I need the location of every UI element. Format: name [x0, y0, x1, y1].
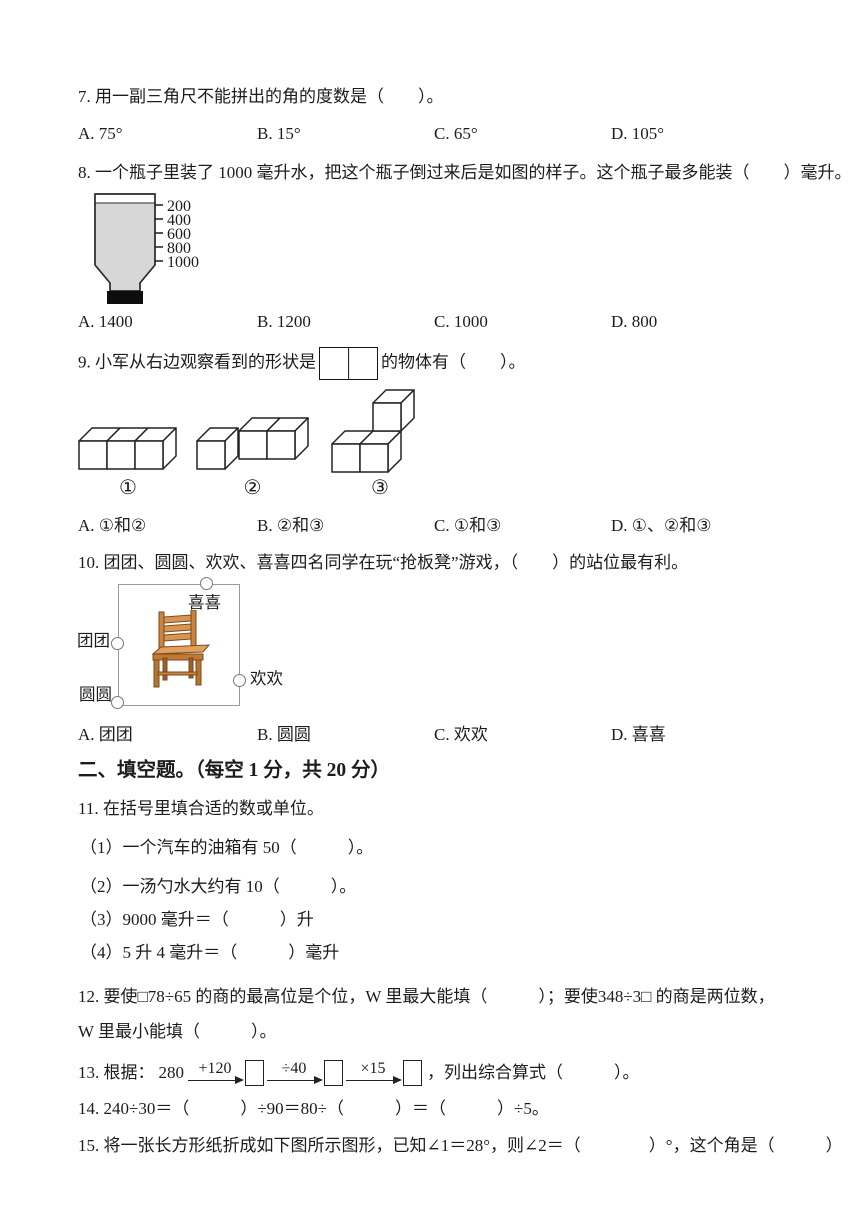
question-9-text: 9. 小军从右边观察看到的形状是的物体有（ ）。: [78, 347, 784, 380]
flow-blank-box-2: [324, 1060, 343, 1086]
flow-arrow-3: ×15: [346, 1061, 400, 1081]
bottle-figure: 200 400 600 800 1000: [92, 192, 784, 306]
option-d: D. ①、②和③: [611, 515, 784, 537]
cube-2-svg: [196, 417, 309, 473]
option-b: B. 1200: [257, 311, 434, 333]
flow-arrow-1: +120: [188, 1061, 242, 1081]
player-right: 欢欢: [250, 670, 283, 688]
option-d: D. 105°: [611, 123, 784, 145]
question-15-text: 15. 将一张长方形纸折成如下图所示图形，已知∠1＝28°，则∠2＝（ ）°，这…: [78, 1135, 784, 1157]
question-10-text: 10. 团团、圆圆、欢欢、喜喜四名同学在玩“抢板凳”游戏，（ ）的站位最有利。: [78, 552, 784, 574]
question-7-options: A. 75° B. 15° C. 65° D. 105°: [78, 123, 784, 145]
question-11-sub-4: （4）5 升 4 毫升＝（ ）毫升: [78, 942, 784, 964]
option-b: B. 圆圆: [257, 724, 434, 746]
question-9-text-after: 的物体有（ ）。: [381, 353, 526, 372]
arrow-right-icon: [188, 1080, 242, 1081]
cube-3-label: ③: [371, 475, 389, 501]
section-2-title: 二、填空题。（每空 1 分，共 20 分）: [78, 759, 784, 782]
exam-page: 7. 用一副三角尺不能拼出的角的度数是（ ）。 A. 75° B. 15° C.…: [0, 0, 868, 1157]
question-10-options: A. 团团 B. 圆圆 C. 欢欢 D. 喜喜: [78, 724, 784, 746]
question-7-text: 7. 用一副三角尺不能拼出的角的度数是（ ）。: [78, 86, 784, 108]
option-d: D. 800: [611, 311, 784, 333]
option-b: B. 15°: [257, 123, 434, 145]
flow-blank-box-3: [403, 1060, 422, 1086]
flow-blank-box-1: [245, 1060, 264, 1086]
flow-start-value: 280: [159, 1062, 185, 1084]
bottle-diagram-svg: 200 400 600 800 1000: [92, 192, 292, 306]
option-a: A. 团团: [78, 724, 257, 746]
flow-op-3: ×15: [360, 1061, 385, 1077]
cube-figures: ① ② ③: [78, 388, 784, 501]
question-11-sub-1: （1）一个汽车的油箱有 50（ ）。: [78, 837, 784, 859]
question-9-options: A. ①和② B. ②和③ C. ①和③ D. ①、②和③: [78, 515, 784, 537]
dot-right: [233, 674, 246, 687]
question-14-text: 14. 240÷30＝（ ）÷90＝80÷（ ）＝（ ）÷5。: [78, 1098, 784, 1120]
dot-top: [200, 577, 213, 590]
question-12-text: 12. 要使□78÷65 的商的最高位是个位，W 里最大能填（ ）；要使348÷…: [78, 979, 784, 1050]
cube-figure-3: ③: [331, 388, 429, 501]
option-c: C. 65°: [434, 123, 611, 145]
option-a: A. 75°: [78, 123, 257, 145]
cube-1-label: ①: [119, 475, 137, 501]
question-8-options: A. 1400 B. 1200 C. 1000 D. 800: [78, 311, 784, 333]
arrow-right-icon: [346, 1080, 400, 1081]
flow-op-1: +120: [198, 1061, 231, 1077]
square-divider: [348, 348, 350, 379]
question-13-flowchart: 13. 根据： 280 +120 ÷40 ×15 ，列出综合算式（ ）。: [78, 1056, 784, 1082]
dot-bottom-left: [111, 696, 124, 709]
flow-op-2: ÷40: [282, 1061, 307, 1077]
flow-arrow-2: ÷40: [267, 1061, 321, 1081]
option-d: D. 喜喜: [611, 724, 784, 746]
question-11-text: 11. 在括号里填合适的数或单位。: [78, 798, 784, 820]
bottle-cap: [107, 291, 143, 304]
question-9-text-before: 9. 小军从右边观察看到的形状是: [78, 353, 316, 372]
chair-game-figure: 喜喜 团团 圆圆 欢欢: [118, 584, 418, 710]
player-left: 团团: [77, 632, 110, 650]
arrow-right-icon: [267, 1080, 321, 1081]
chair-icon: [151, 610, 211, 690]
cube-figure-2: ②: [196, 417, 309, 501]
cube-figure-1: ①: [78, 425, 178, 501]
option-c: C. 欢欢: [434, 724, 611, 746]
cube-3-svg: [331, 388, 429, 473]
option-c: C. ①和③: [434, 515, 611, 537]
player-top: 喜喜: [188, 594, 221, 612]
question-13-lead: 13. 根据：: [78, 1062, 155, 1084]
option-a: A. ①和②: [78, 515, 257, 537]
question-8-text: 8. 一个瓶子里装了 1000 毫升水，把这个瓶子倒过来后是如图的样子。这个瓶子…: [78, 162, 784, 184]
two-squares-shape: [319, 347, 378, 380]
cube-1-svg: [78, 425, 178, 473]
player-bottom-left: 圆圆: [79, 686, 112, 704]
question-11-sub-2: （2）一汤勺水大约有 10（ ）。: [78, 876, 784, 898]
option-b: B. ②和③: [257, 515, 434, 537]
dot-left: [111, 637, 124, 650]
cube-2-label: ②: [244, 475, 262, 501]
question-13-suffix: ，列出综合算式（ ）。: [427, 1062, 640, 1084]
option-c: C. 1000: [434, 311, 611, 333]
option-a: A. 1400: [78, 311, 257, 333]
question-11-sub-3: （3）9000 毫升＝（ ）升: [78, 909, 784, 931]
scale-1000: 1000: [167, 254, 199, 271]
